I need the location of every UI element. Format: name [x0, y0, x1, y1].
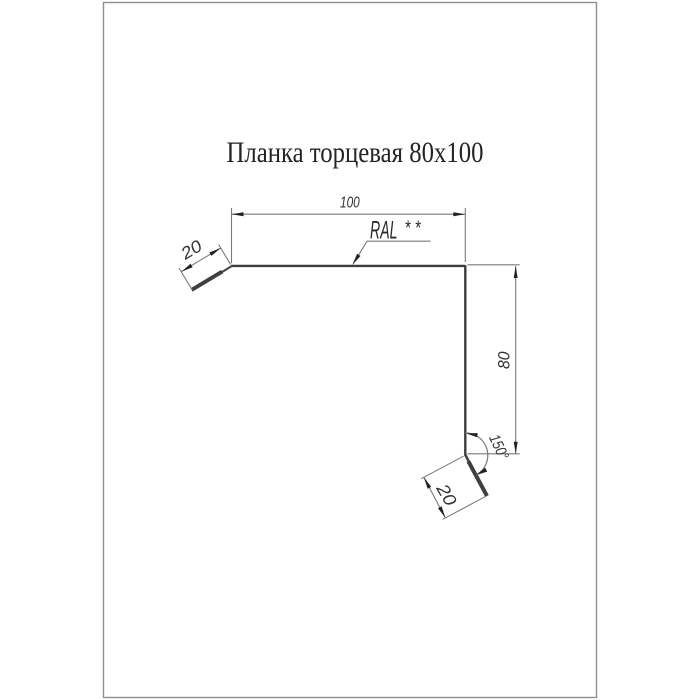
- svg-text:80: 80: [496, 352, 514, 369]
- svg-text:Планка торцевая 80х100: Планка торцевая 80х100: [227, 136, 484, 169]
- svg-text:* *: * *: [405, 218, 422, 240]
- svg-text:RAL: RAL: [370, 217, 398, 244]
- svg-text:100: 100: [340, 195, 360, 212]
